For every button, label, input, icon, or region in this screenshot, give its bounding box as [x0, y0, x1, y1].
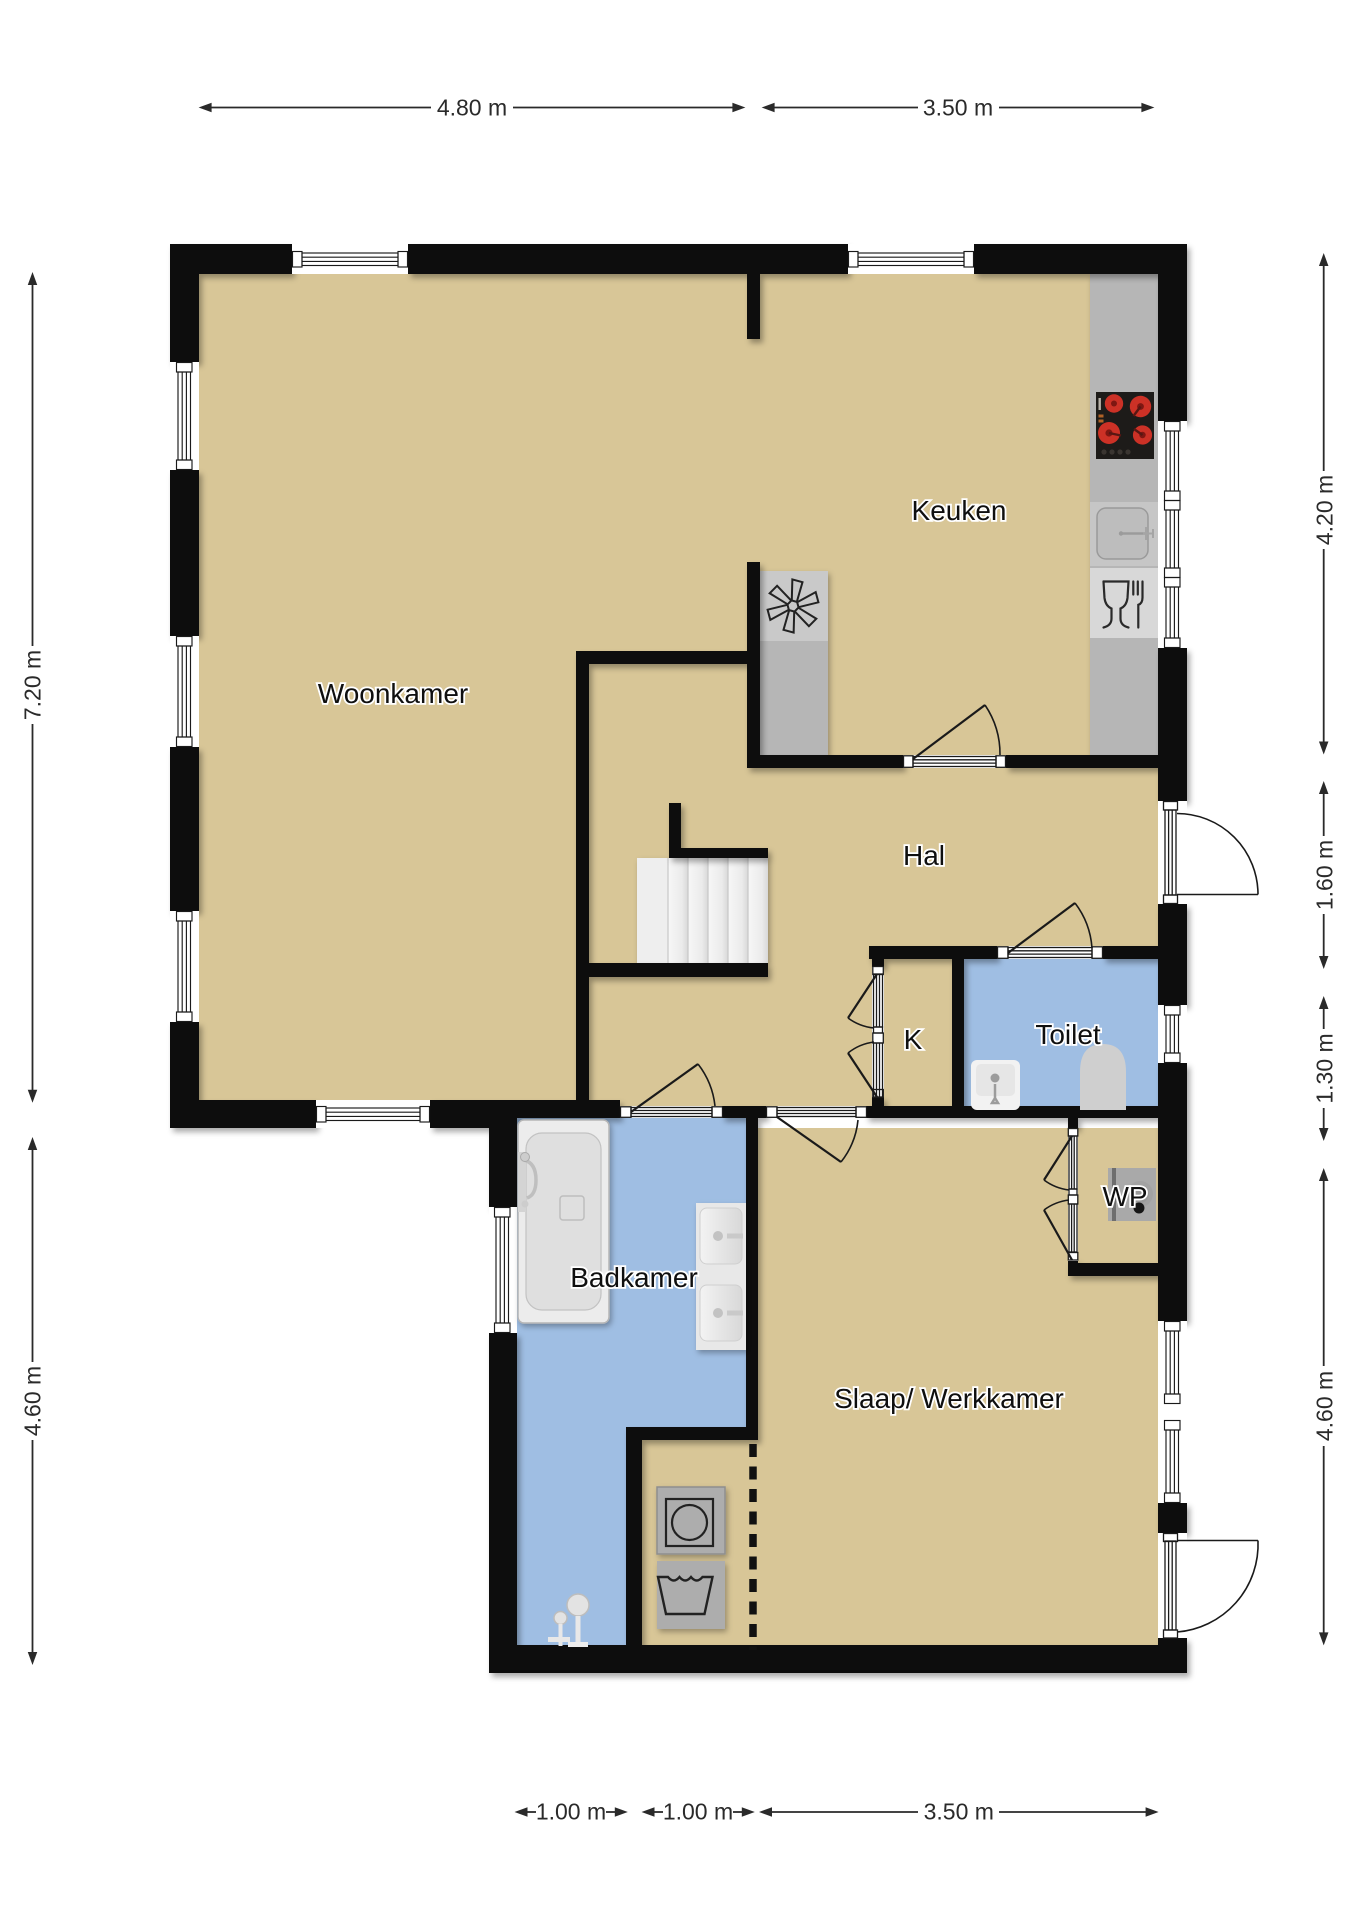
svg-text:Keuken: Keuken: [912, 495, 1007, 526]
svg-text:Toilet: Toilet: [1035, 1019, 1101, 1050]
svg-text:3.50 m: 3.50 m: [923, 95, 993, 121]
svg-text:Woonkamer: Woonkamer: [318, 678, 468, 709]
svg-text:Badkamer: Badkamer: [570, 1262, 698, 1293]
svg-text:7.20 m: 7.20 m: [20, 650, 46, 720]
svg-text:1.30 m: 1.30 m: [1312, 1033, 1338, 1103]
svg-text:Slaap/ Werkkamer: Slaap/ Werkkamer: [834, 1383, 1064, 1414]
svg-text:Hal: Hal: [903, 840, 945, 871]
svg-text:4.60 m: 4.60 m: [20, 1366, 46, 1436]
svg-text:K: K: [904, 1024, 923, 1055]
svg-text:WP: WP: [1102, 1181, 1147, 1212]
svg-text:1.00 m: 1.00 m: [536, 1799, 606, 1825]
svg-text:4.80 m: 4.80 m: [437, 95, 507, 121]
svg-text:4.60 m: 4.60 m: [1312, 1371, 1338, 1441]
svg-text:1.00 m: 1.00 m: [663, 1799, 733, 1825]
svg-text:1.60 m: 1.60 m: [1312, 840, 1338, 910]
svg-text:3.50 m: 3.50 m: [924, 1799, 994, 1825]
svg-text:4.20 m: 4.20 m: [1312, 475, 1338, 545]
